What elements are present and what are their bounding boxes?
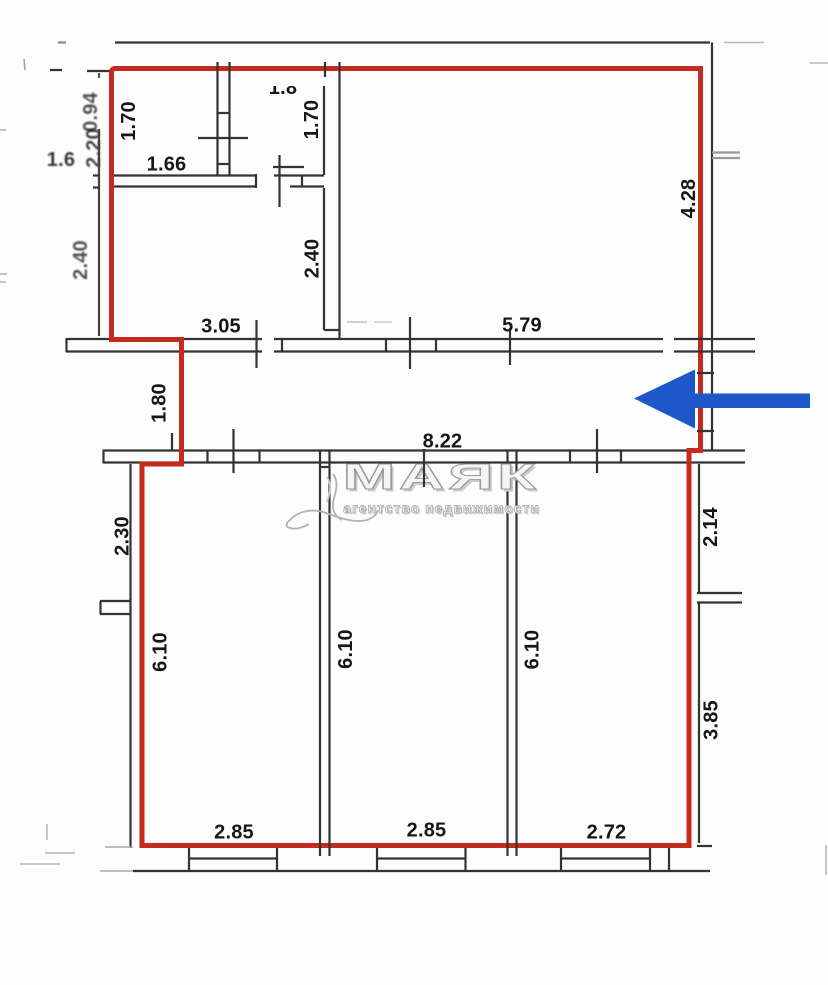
svg-text:1.66: 1.66 [147,154,187,176]
svg-text:2.30: 2.30 [112,516,134,556]
svg-text:6.10: 6.10 [335,629,357,669]
svg-text:2.85: 2.85 [214,822,254,844]
svg-text:4.28: 4.28 [678,179,700,219]
svg-text:3.85: 3.85 [701,700,723,740]
svg-text:2.85: 2.85 [407,820,447,842]
svg-text:2.20: 2.20 [83,128,105,168]
svg-text:1.70: 1.70 [301,100,323,140]
svg-text:2.40: 2.40 [70,240,92,280]
svg-text:1.80: 1.80 [149,383,171,423]
svg-text:МАЯК: МАЯК [343,456,540,497]
svg-text:2.40: 2.40 [302,239,324,279]
svg-text:2.72: 2.72 [587,822,627,844]
svg-text:6.10: 6.10 [522,630,544,670]
svg-text:5.79: 5.79 [502,315,542,337]
svg-text:6.10: 6.10 [150,632,172,672]
svg-text:0.94: 0.94 [80,91,102,131]
svg-text:1.70: 1.70 [118,101,140,141]
svg-text:3.05: 3.05 [201,316,241,338]
svg-text:2.14: 2.14 [700,506,722,546]
svg-text:1.6: 1.6 [47,149,75,171]
svg-text:агентство недвижимости: агентство недвижимости [343,500,540,516]
svg-text:8.22: 8.22 [423,431,463,453]
